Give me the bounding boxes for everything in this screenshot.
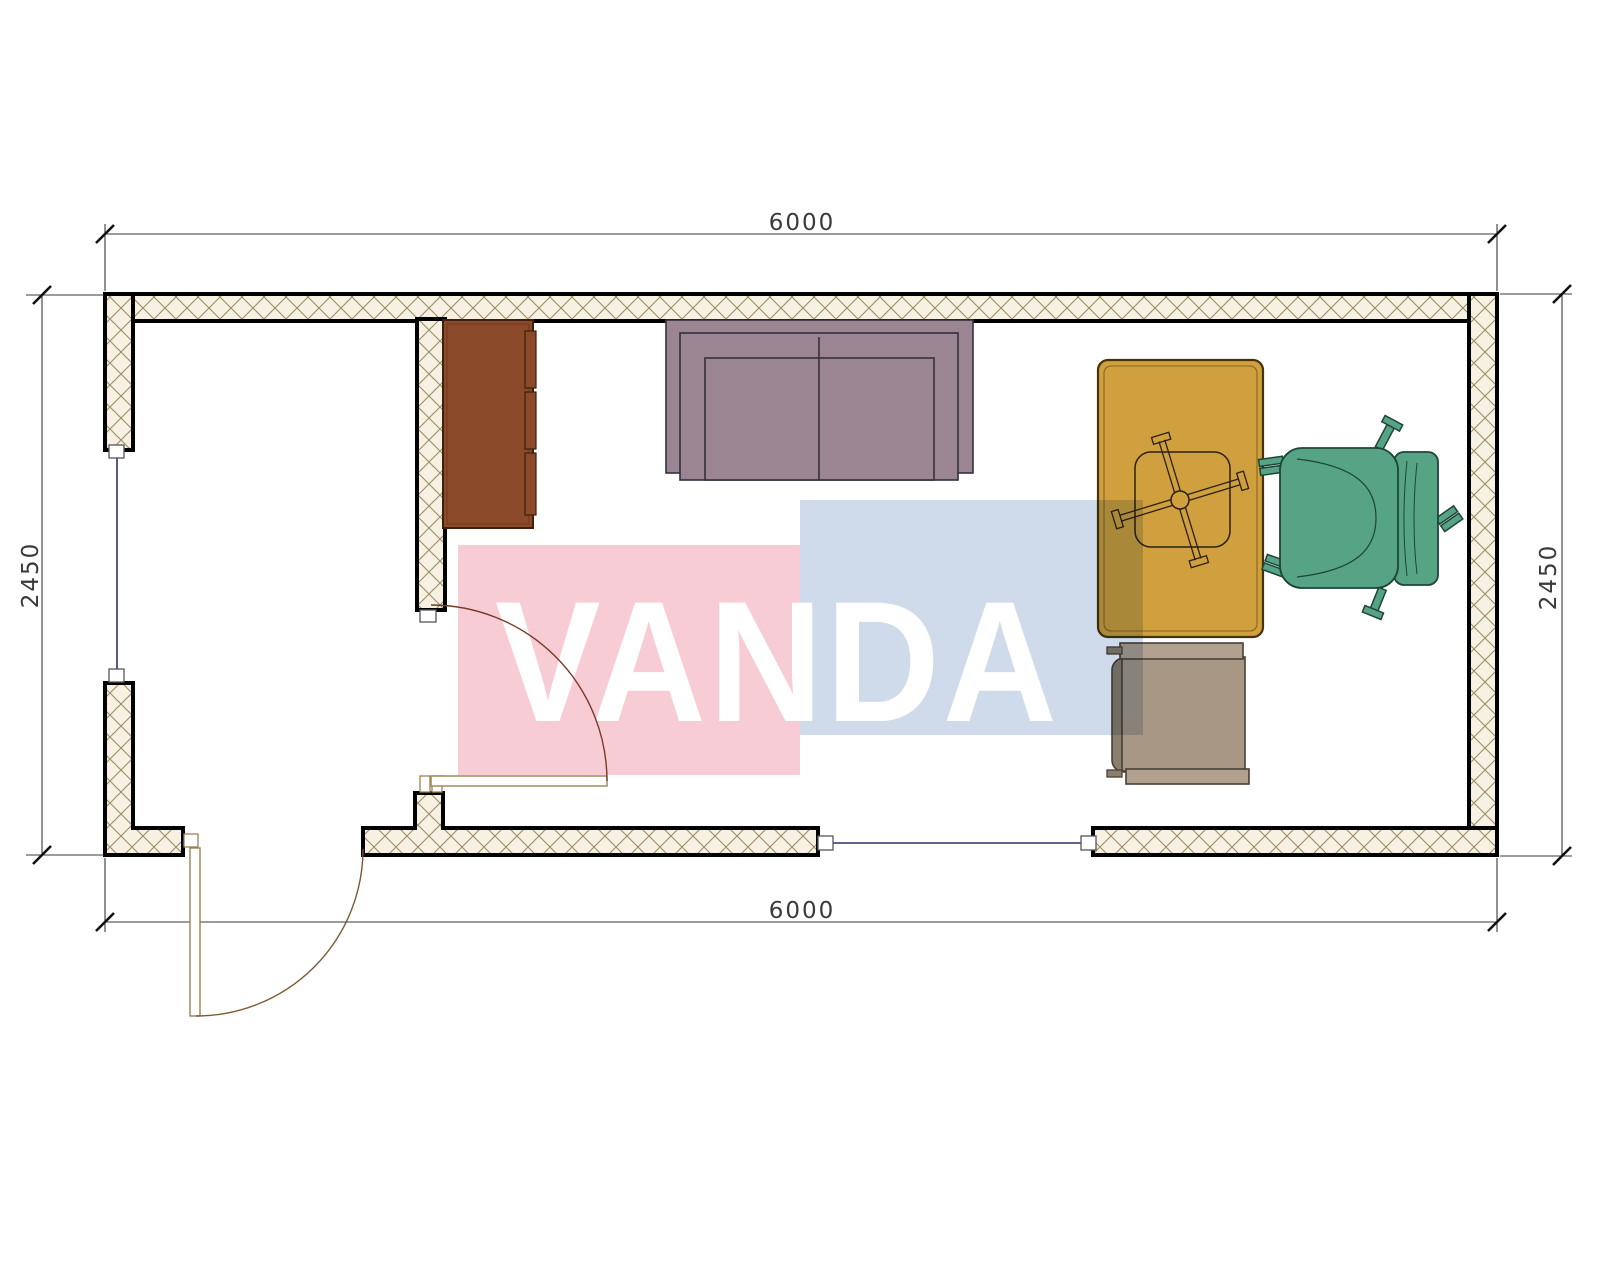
- cabinet-drawer: [525, 392, 536, 449]
- dimension-right: 2450: [1500, 285, 1572, 865]
- cabinet-inner-line: [447, 324, 529, 524]
- sofa-back: [666, 320, 973, 473]
- office-chair-back-line: [1414, 463, 1417, 574]
- office-chair-seat-contour: [1297, 459, 1376, 577]
- dim-tick: [96, 225, 114, 243]
- stool-foot: [1152, 432, 1171, 444]
- exterior-door-leaf: [190, 848, 200, 1016]
- exterior-door-swing-arc: [196, 849, 363, 1016]
- dim-tick: [1553, 285, 1571, 303]
- door-frame-block: [432, 776, 442, 792]
- office-chair-back-line: [1404, 461, 1407, 576]
- stool-seat-outline: [1135, 452, 1230, 547]
- dimension-left: 2450: [18, 286, 104, 864]
- cabinet-drawer: [525, 453, 536, 515]
- cabinet: [443, 320, 536, 528]
- dim-tick: [1488, 913, 1506, 931]
- left-upper-wall: [105, 294, 133, 450]
- office-chair: [1259, 416, 1463, 620]
- door-frame-block: [420, 776, 430, 792]
- sofa: [666, 320, 973, 480]
- dim-tick: [1488, 225, 1506, 243]
- dimension-top: 6000: [96, 210, 1506, 291]
- office-chair-seat: [1280, 448, 1398, 588]
- office-chair-casters: [1259, 416, 1463, 620]
- dimension-bottom: 6000: [96, 858, 1506, 932]
- window-junction: [818, 836, 833, 850]
- dim-tick: [1553, 847, 1571, 865]
- top-wall: [105, 294, 1497, 321]
- watermark-text: VANDA: [495, 576, 1060, 748]
- partition-wall: [417, 319, 445, 610]
- interior-door-leaf: [431, 776, 607, 786]
- right-wall: [1469, 294, 1497, 855]
- dimension-left-label: 2450: [18, 542, 44, 609]
- dimension-top-label: 6000: [769, 210, 836, 236]
- office-chair-backrest: [1394, 452, 1438, 585]
- left-lower-wall: [105, 683, 183, 855]
- sofa-seat: [705, 358, 934, 480]
- stool-foot: [1237, 471, 1249, 490]
- side-chair-foot: [1107, 770, 1122, 777]
- dim-tick: [33, 846, 51, 864]
- exterior-door: [184, 834, 363, 1016]
- bottom-left-wall: [363, 793, 818, 855]
- dimension-right-label: 2450: [1536, 544, 1562, 611]
- cabinet-body: [443, 320, 533, 528]
- sofa-arms: [680, 333, 958, 480]
- partition-end-junction: [420, 610, 436, 622]
- window-junction: [109, 445, 124, 458]
- dim-tick: [33, 286, 51, 304]
- door-frame-block: [184, 834, 198, 847]
- window-junction: [109, 669, 124, 682]
- side-chair-armrest: [1126, 769, 1249, 784]
- stool-hub: [1169, 489, 1191, 511]
- floor-plan-page: 6000 6000 2450: [0, 0, 1600, 1280]
- dimension-bottom-label: 6000: [769, 898, 836, 924]
- cabinet-drawer: [525, 331, 536, 388]
- window-junction: [1081, 836, 1096, 850]
- bottom-right-wall: [1093, 828, 1497, 855]
- stool-foot: [1189, 556, 1208, 568]
- dim-tick: [96, 913, 114, 931]
